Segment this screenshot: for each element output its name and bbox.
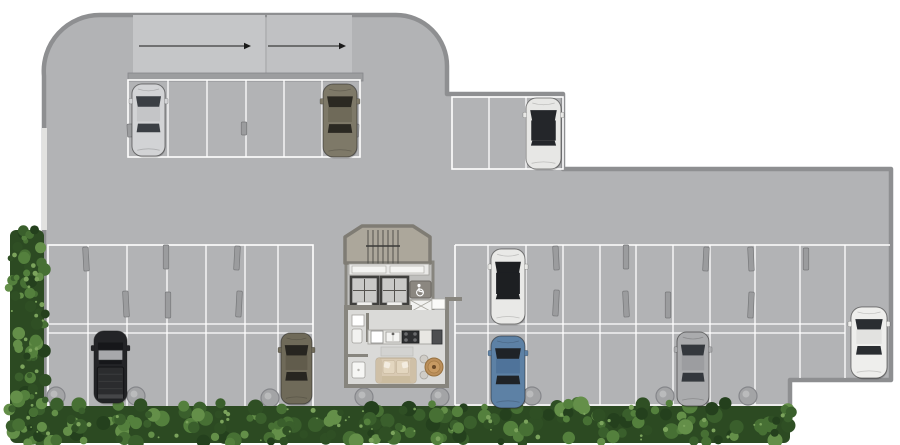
hedge-highlight (486, 415, 491, 420)
hedge-highlight (583, 413, 585, 415)
hedge-foliage (215, 398, 225, 408)
hedge-foliage (276, 404, 287, 415)
side-mirror (525, 264, 529, 270)
hedge-highlight (726, 435, 729, 438)
hedge-foliage (79, 407, 86, 414)
car-rear-glass (99, 361, 121, 365)
car-gray-sedan-lower-row (674, 332, 712, 408)
car-rear-window (137, 124, 161, 133)
hedge-foliage (651, 406, 659, 414)
hedge-highlight (220, 420, 224, 424)
hedge-foliage (429, 408, 444, 423)
hedge-highlight (629, 405, 634, 410)
hedge-foliage (464, 416, 477, 429)
hedge-foliage (428, 400, 436, 408)
hedge-foliage (583, 416, 592, 425)
wheel-stop (553, 246, 560, 270)
hedge-foliage (15, 372, 24, 381)
hedge-foliage (481, 404, 488, 411)
hedge-highlight (535, 435, 540, 440)
hedge-foliage (27, 425, 33, 431)
hedge-highlight (524, 420, 528, 424)
hedge-foliage (519, 422, 534, 437)
car-rear-window (496, 294, 520, 299)
hedge-foliage (660, 408, 672, 420)
hedge-foliage (115, 435, 122, 442)
column-highlight (743, 391, 750, 398)
hedge-foliage (23, 352, 30, 359)
side-mirror (357, 99, 361, 105)
car-rear-window (531, 141, 556, 146)
wheel-stop (703, 247, 710, 271)
core-wall (449, 297, 462, 301)
hedge-foliage (30, 225, 39, 234)
hedge-foliage (214, 422, 226, 434)
hedge-foliage (39, 374, 51, 386)
side-mirror (848, 321, 852, 327)
hedge-highlight (35, 369, 39, 373)
car-silver-sedan-top-left (129, 84, 168, 158)
wheel-stop (234, 246, 241, 270)
core-wall (348, 354, 368, 357)
hedge-foliage (497, 438, 504, 445)
wheel-stop (83, 247, 90, 271)
hedge-foliage (188, 422, 200, 434)
hedge-foliage (114, 414, 126, 426)
side-mirror (320, 99, 324, 105)
hedge-highlight (27, 285, 30, 288)
elevator-door-track (390, 266, 424, 273)
side-mirror (165, 98, 169, 104)
hedge-foliage (364, 418, 371, 425)
hedge-highlight (186, 421, 189, 424)
car-rear-window (328, 124, 352, 133)
car-roof (286, 355, 308, 369)
hedge-highlight (488, 419, 492, 423)
hedge-foliage (666, 400, 673, 407)
hedge-foliage (10, 391, 23, 404)
hedge-foliage (606, 430, 619, 443)
hedge-foliage (145, 411, 152, 418)
hedge-foliage (754, 419, 768, 433)
car-white-coupe-far-right (848, 307, 890, 380)
side-mirror (488, 264, 492, 270)
hedge-foliage (29, 407, 39, 417)
hedge-highlight (451, 429, 453, 431)
hedge-highlight (359, 424, 362, 427)
hedge-highlight (560, 413, 563, 416)
wheel-stop (236, 291, 243, 317)
wheel-stop (748, 292, 755, 318)
hedge-highlight (345, 419, 347, 421)
hedge-foliage (14, 275, 20, 281)
hedge-highlight (640, 439, 642, 441)
hedge-foliage (191, 408, 204, 421)
car-roof (137, 107, 160, 122)
ramp-area (133, 15, 352, 73)
hedge-foliage (11, 291, 21, 301)
hedge-foliage (215, 411, 223, 419)
hedge-highlight (391, 431, 395, 435)
sofa (376, 358, 416, 383)
car-rear-window (856, 346, 882, 355)
hedge-foliage (719, 397, 731, 409)
hedge-highlight (24, 277, 29, 282)
car-blue-sedan-lower-row (488, 336, 528, 410)
hedge-highlight (599, 421, 603, 425)
column-highlight (660, 391, 667, 398)
hedge-foliage (134, 398, 147, 411)
sofa-armrest (410, 358, 416, 383)
car-roof (856, 329, 881, 343)
floor-plan-canvas (0, 0, 900, 445)
hedge-highlight (413, 430, 415, 432)
left-wall-light-segment (42, 128, 47, 230)
column-highlight (131, 391, 138, 398)
car-windshield (681, 345, 705, 357)
hedge-foliage (80, 437, 88, 445)
wheel-stop (803, 248, 809, 270)
hedge-highlight (20, 364, 25, 369)
hedge-highlight (702, 418, 706, 422)
hedge-highlight (46, 431, 50, 435)
hedge-foliage (453, 422, 464, 433)
car-rear-window (496, 376, 520, 385)
hedge-highlight (413, 408, 416, 411)
hedge-foliage (529, 406, 543, 420)
hedge-foliage (500, 409, 512, 421)
hedge-highlight (663, 427, 668, 432)
hedge-foliage (12, 242, 22, 252)
icon-head (417, 284, 420, 287)
hedge-highlight (35, 392, 37, 394)
side-mirror (674, 347, 678, 353)
shower-drain (357, 369, 359, 371)
hedge-foliage (25, 301, 36, 312)
car-white-sedan-top-right (523, 98, 564, 171)
hedge-foliage (399, 406, 408, 415)
elevator-shaft (351, 277, 378, 304)
car-roof (682, 355, 704, 370)
car-roof (496, 359, 520, 374)
hedge-foliage (178, 401, 189, 412)
hedge-highlight (759, 423, 762, 426)
car-roof (531, 120, 556, 140)
elevator-shaft (381, 277, 408, 304)
hedge-highlight (683, 425, 685, 427)
wheel-stop (623, 291, 630, 317)
hedge-foliage (35, 242, 46, 253)
side-mirror (525, 350, 529, 356)
hedge-foliage (27, 373, 32, 378)
car-roof (328, 107, 352, 122)
kitchenette (368, 330, 442, 344)
hedge-foliage (37, 422, 47, 432)
hedge-foliage (563, 399, 573, 409)
hedge-highlight (311, 408, 316, 413)
hedge-foliage (31, 318, 43, 330)
hedge-highlight (289, 430, 291, 432)
hedge-foliage (277, 418, 286, 427)
hedge-foliage (241, 431, 249, 439)
hedge-foliage (24, 288, 35, 299)
car-windshield (495, 262, 521, 274)
hedge-highlight (436, 436, 441, 441)
truck-bed (97, 367, 123, 399)
side-mirror (561, 112, 565, 118)
wheel-stop (623, 245, 629, 269)
side-mirror (127, 345, 131, 351)
hedge-highlight (514, 428, 518, 432)
car-windshield (285, 345, 309, 356)
hedge-highlight (12, 253, 17, 258)
hedge-foliage (12, 418, 25, 431)
hedge-foliage (714, 435, 723, 444)
side-mirror (129, 98, 133, 104)
column-highlight (265, 393, 272, 400)
hedge-highlight (337, 424, 341, 428)
hedge-foliage (36, 258, 46, 268)
car-olive-sedan-top-left (320, 84, 360, 159)
hedge-highlight (371, 428, 373, 430)
hedge-foliage (730, 420, 744, 434)
car-windshield (136, 96, 161, 108)
hedge-highlight (76, 422, 80, 426)
hedge-highlight (30, 426, 32, 428)
console-table (381, 347, 413, 356)
hedge-foliage (771, 429, 779, 437)
lobby-door (432, 299, 445, 309)
hedge-highlight (36, 431, 38, 433)
hedge-highlight (31, 404, 34, 407)
hedge-highlight (35, 277, 40, 282)
wheel-stop (163, 245, 169, 269)
car-roof (496, 273, 520, 294)
hedge-foliage (324, 416, 335, 427)
side-mirror (523, 112, 527, 118)
hedge-foliage (50, 398, 64, 412)
hedge-foliage (636, 408, 648, 420)
hedge-highlight (369, 438, 374, 443)
hedge-foliage (255, 413, 266, 424)
hedge-highlight (42, 319, 44, 321)
stair-hall (345, 226, 430, 263)
sink-faucet (392, 333, 395, 336)
hedge-foliage (543, 409, 555, 421)
stove-burner (413, 338, 417, 342)
column-highlight (359, 392, 366, 399)
hedge-foliage (211, 433, 219, 441)
car-cab-roof (99, 350, 123, 359)
truck-tailgate (98, 394, 123, 398)
wheel-stop (665, 292, 671, 318)
hedge-highlight (781, 413, 785, 417)
hedge-foliage (268, 423, 275, 430)
hedge-highlight (607, 419, 610, 422)
core-wall (344, 384, 449, 388)
hedge-foliage (96, 416, 110, 430)
wash-basin (352, 329, 362, 343)
hedge-highlight (287, 408, 289, 410)
column-highlight (435, 392, 442, 399)
hedge-foliage (8, 405, 15, 412)
car-rear-window (681, 373, 704, 382)
hedge-highlight (35, 347, 38, 350)
table-decor (432, 365, 436, 369)
hedge-foliage (592, 409, 605, 422)
hedge-foliage (380, 414, 394, 428)
stove-burner (404, 332, 408, 336)
hedge-foliage (23, 270, 30, 277)
car-olive-sedan-lower-left (278, 333, 315, 406)
hedge-foliage (563, 432, 575, 444)
hedge-highlight (712, 429, 716, 433)
hedge-foliage (326, 430, 336, 440)
wheel-stop (165, 292, 171, 318)
hedge-foliage (395, 423, 403, 431)
hedge-foliage (642, 425, 652, 435)
hedge-foliage (573, 397, 589, 413)
hedge-foliage (405, 427, 416, 438)
core-wall (344, 310, 348, 388)
car-white-black-roof-sedan-upper-row (488, 249, 528, 326)
car-windshield (327, 96, 353, 108)
hedge-highlight (39, 302, 44, 307)
side-mirror (488, 350, 492, 356)
hedge-foliage (30, 335, 42, 347)
wheel-stop (123, 291, 130, 317)
hedge-highlight (640, 434, 643, 437)
core-wall (445, 297, 449, 388)
hedge-foliage (14, 344, 23, 353)
car-windshield (98, 343, 123, 350)
hedge-highlight (31, 263, 36, 268)
hedge-highlight (35, 301, 37, 303)
accessible-parking-sign (410, 281, 431, 298)
dishwasher (371, 331, 383, 343)
car-windshield (530, 110, 557, 121)
stove-burner (413, 332, 417, 336)
hedge-highlight (24, 338, 28, 342)
column-highlight (527, 391, 534, 398)
hedge-foliage (337, 409, 344, 416)
hedge-foliage (18, 252, 30, 264)
hedge-foliage (148, 431, 154, 437)
round-table (425, 358, 443, 376)
hedge-foliage (246, 415, 253, 422)
bath-cabinet (352, 315, 364, 326)
hedge-foliage (52, 410, 59, 417)
hedge-foliage (282, 426, 292, 436)
hedge-highlight (87, 422, 92, 427)
side-mirror (91, 345, 95, 351)
hedge-foliage (783, 413, 792, 422)
sofa-armrest (376, 358, 382, 383)
hedge-highlight (158, 436, 160, 438)
hedge-foliage (308, 417, 323, 432)
hedge-highlight (226, 418, 229, 421)
car-windshield (855, 319, 882, 330)
hedge-highlight (11, 310, 13, 312)
wheel-stop (748, 247, 755, 271)
hedge-foliage (63, 427, 72, 436)
hedge-highlight (348, 416, 350, 418)
hedge-highlight (316, 418, 318, 420)
wheel-stop (553, 290, 560, 316)
car-black-pickup-lower-left (91, 331, 130, 405)
fridge-cabinet (432, 330, 442, 344)
hedge-foliage (42, 397, 49, 404)
core-wall (344, 305, 412, 310)
hedge-highlight (753, 424, 755, 426)
wheel-stop (241, 122, 247, 135)
hedge-highlight (116, 415, 119, 418)
hedge-foliage (143, 420, 151, 428)
hedge-foliage (563, 415, 570, 422)
hedge-foliage (127, 415, 135, 423)
hedge-foliage (12, 327, 25, 340)
hedge-foliage (772, 417, 780, 425)
hedge-highlight (260, 439, 262, 441)
hedge-foliage (452, 406, 463, 417)
hedge-highlight (226, 412, 230, 416)
hedge-highlight (490, 429, 492, 431)
hedge-highlight (362, 410, 364, 412)
hedge-highlight (29, 349, 32, 352)
hedge-foliage (299, 430, 308, 439)
car-rear-window (285, 372, 307, 381)
hedge-foliage (41, 309, 50, 318)
stove (402, 331, 419, 343)
side-mirror (709, 347, 713, 353)
side-mirror (278, 347, 282, 353)
hedge-highlight (26, 416, 30, 420)
hedge-highlight (34, 314, 38, 318)
car-windshield (495, 348, 521, 360)
side-mirror (887, 321, 891, 327)
hedge-highlight (174, 434, 178, 438)
stove-burner (404, 338, 408, 342)
side-mirror (312, 347, 316, 353)
column-highlight (51, 391, 58, 398)
floor-plan (0, 0, 900, 445)
elevator-door-track (352, 266, 386, 273)
hedge-foliage (678, 419, 693, 434)
hedge-highlight (33, 271, 38, 276)
